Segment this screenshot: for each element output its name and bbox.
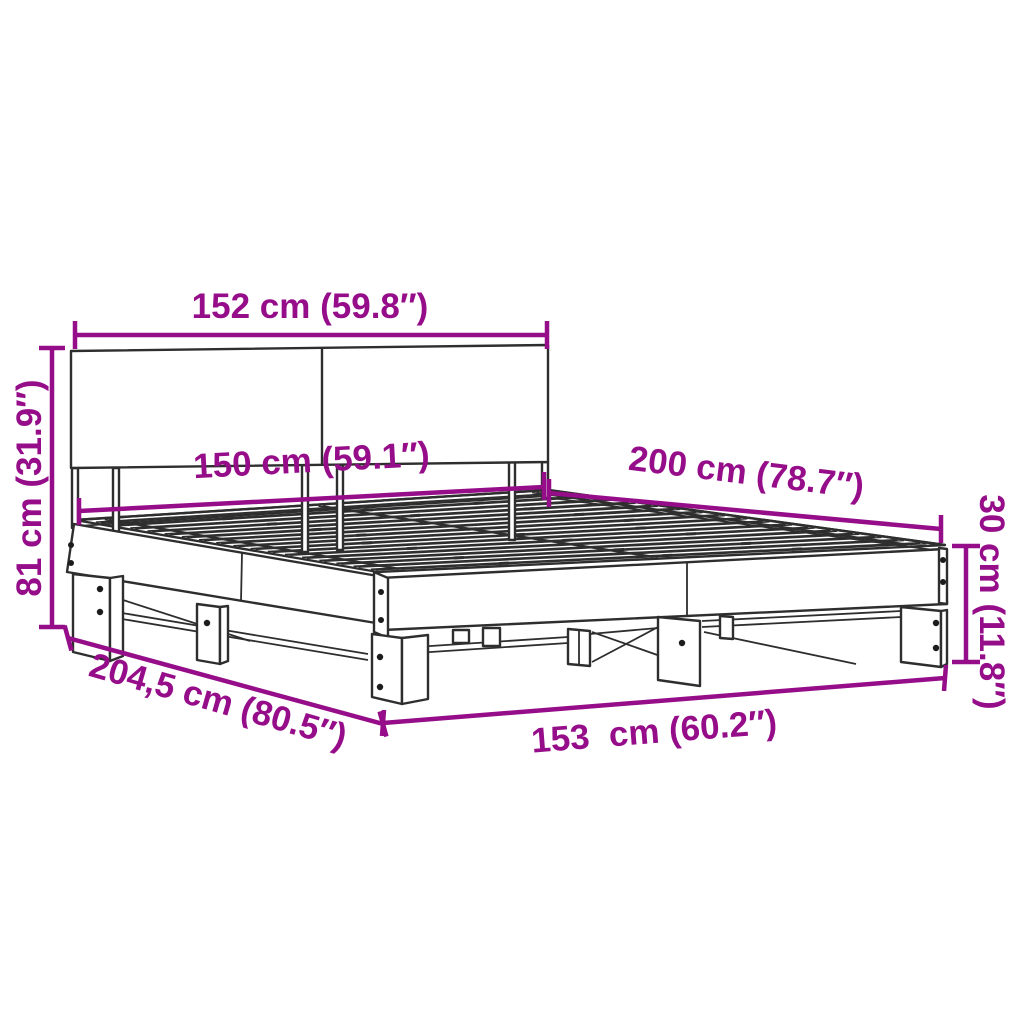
slat-screw-mark [686, 534, 696, 535]
leg-foot-mid [658, 617, 700, 686]
slat-support-tab [453, 630, 469, 643]
slat-screw-mark [420, 523, 430, 524]
slat-screw-mark [562, 540, 572, 541]
leg-left-mid [197, 604, 220, 664]
slat-screw-mark [614, 550, 624, 551]
slat-screw-mark [574, 514, 584, 515]
slat-screw-mark [792, 549, 802, 550]
slat-screw-mark [311, 529, 321, 530]
label-headboard-height: 81 cm (31.9″) [10, 379, 49, 596]
slat-screw-mark [223, 518, 233, 519]
slat-screw-mark [410, 515, 420, 516]
leg-foot-left [372, 634, 402, 704]
slat-screw-mark [636, 528, 646, 529]
dimension-frame-height: 30 cm (11.8″) [952, 494, 1011, 709]
slat-screw-mark [474, 503, 484, 504]
slat-screw-mark [499, 563, 509, 564]
bed-frame-dimension-diagram: 152 cm (59.8″) 81 cm (31.9″) 150 cm (59.… [0, 0, 1024, 1024]
slat-screw-mark [356, 535, 366, 536]
leg-foot-right [901, 607, 941, 667]
label-frame-height: 30 cm (11.8″) [972, 494, 1011, 709]
dimension-headboard-width: 152 cm (59.8″) [75, 287, 547, 349]
label-headboard-width: 152 cm (59.8″) [192, 287, 429, 326]
foot-left-corner-post [374, 572, 388, 638]
dimension-headboard-height: 81 cm (31.9″) [10, 348, 65, 627]
foot-right-corner-post [939, 548, 947, 604]
slat-screw-mark [624, 520, 634, 521]
slat-screw-mark [362, 543, 372, 544]
label-bed-length: 200 cm (78.7″) [627, 439, 867, 507]
slat-screw-mark [363, 510, 373, 511]
label-total-width: 153 cm (60.2″) [530, 702, 779, 760]
diagram-canvas: 152 cm (59.8″) 81 cm (31.9″) 150 cm (59.… [0, 0, 1024, 1024]
slat-screw-mark [267, 524, 277, 525]
slat-screw-mark [467, 529, 477, 530]
slat-screw-mark [662, 555, 672, 556]
slat-screw-mark [524, 509, 534, 510]
slat-support-tab [483, 628, 500, 646]
slat-screw-mark [741, 543, 751, 544]
slat-screw-mark [454, 558, 464, 559]
slat-screw-mark [407, 548, 417, 549]
